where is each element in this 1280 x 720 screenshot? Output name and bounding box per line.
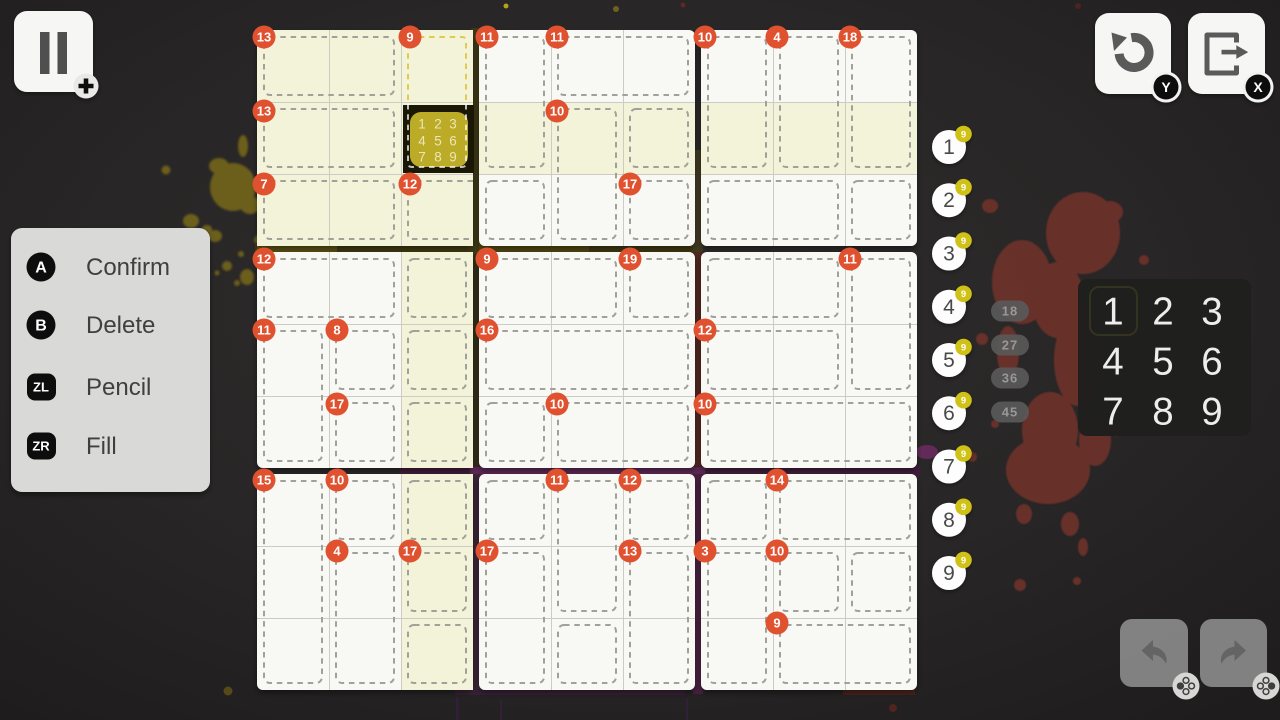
svg-text:Pencil: Pencil	[86, 374, 151, 401]
svg-text:2: 2	[1152, 291, 1173, 334]
svg-text:9: 9	[961, 449, 966, 460]
svg-text:3: 3	[701, 544, 708, 559]
svg-text:10: 10	[698, 30, 712, 45]
svg-text:9: 9	[961, 502, 966, 513]
svg-text:9: 9	[961, 129, 966, 140]
svg-text:9: 9	[961, 236, 966, 247]
svg-text:10: 10	[550, 104, 564, 119]
svg-text:4: 4	[1102, 341, 1123, 384]
svg-text:9: 9	[961, 396, 966, 407]
svg-text:8: 8	[1152, 391, 1173, 434]
svg-text:17: 17	[623, 177, 637, 192]
svg-text:11: 11	[843, 252, 857, 267]
svg-text:Delete: Delete	[86, 312, 155, 339]
svg-text:19: 19	[623, 252, 637, 267]
svg-text:10: 10	[330, 473, 344, 488]
svg-text:7: 7	[943, 456, 955, 479]
svg-text:9: 9	[1201, 391, 1222, 434]
svg-text:4: 4	[418, 133, 426, 148]
svg-text:B: B	[35, 318, 47, 335]
svg-text:9: 9	[961, 289, 966, 300]
svg-text:X: X	[1253, 79, 1263, 95]
svg-text:8: 8	[333, 323, 340, 338]
svg-text:11: 11	[257, 323, 271, 338]
svg-text:ZR: ZR	[32, 439, 50, 454]
svg-text:11: 11	[550, 30, 564, 45]
svg-text:3: 3	[943, 243, 955, 266]
svg-text:6: 6	[1201, 341, 1222, 384]
svg-text:ZL: ZL	[33, 380, 49, 395]
svg-text:5: 5	[434, 133, 442, 148]
svg-text:5: 5	[943, 349, 955, 372]
svg-text:10: 10	[698, 397, 712, 412]
svg-text:8: 8	[943, 509, 955, 532]
svg-text:17: 17	[403, 544, 417, 559]
svg-text:12: 12	[623, 473, 637, 488]
svg-text:45: 45	[1002, 405, 1018, 420]
svg-text:13: 13	[623, 544, 637, 559]
svg-text:13: 13	[257, 30, 271, 45]
svg-text:7: 7	[418, 149, 426, 164]
svg-text:9: 9	[449, 149, 457, 164]
svg-text:6: 6	[449, 133, 457, 148]
svg-text:2: 2	[434, 116, 442, 131]
svg-text:14: 14	[770, 473, 785, 488]
svg-text:9: 9	[943, 562, 955, 585]
svg-text:9: 9	[961, 555, 966, 566]
svg-text:Y: Y	[1161, 79, 1171, 95]
svg-text:9: 9	[961, 342, 966, 353]
svg-text:15: 15	[257, 473, 271, 488]
svg-text:3: 3	[1201, 291, 1222, 334]
svg-text:7: 7	[260, 177, 267, 192]
svg-text:Fill: Fill	[86, 433, 117, 460]
svg-text:A: A	[35, 260, 47, 277]
svg-text:9: 9	[406, 30, 413, 45]
svg-text:5: 5	[1152, 341, 1173, 384]
svg-text:1: 1	[943, 136, 955, 159]
svg-text:17: 17	[330, 397, 344, 412]
svg-text:4: 4	[943, 296, 955, 319]
svg-text:2: 2	[943, 189, 955, 212]
svg-text:3: 3	[449, 116, 457, 131]
svg-text:12: 12	[403, 177, 417, 192]
svg-text:9: 9	[483, 252, 490, 267]
svg-text:12: 12	[698, 323, 712, 338]
svg-text:4: 4	[333, 544, 341, 559]
svg-text:36: 36	[1002, 371, 1018, 386]
svg-text:10: 10	[770, 544, 784, 559]
svg-text:10: 10	[550, 397, 564, 412]
svg-text:1: 1	[418, 116, 426, 131]
svg-text:4: 4	[773, 30, 781, 45]
svg-text:1: 1	[1102, 291, 1123, 334]
svg-text:18: 18	[1002, 304, 1018, 319]
svg-text:6: 6	[943, 402, 955, 425]
svg-text:17: 17	[480, 544, 494, 559]
svg-text:18: 18	[843, 30, 857, 45]
svg-text:27: 27	[1002, 338, 1018, 353]
svg-text:16: 16	[480, 323, 494, 338]
svg-text:9: 9	[961, 183, 966, 194]
svg-text:11: 11	[550, 473, 564, 488]
svg-text:11: 11	[480, 30, 494, 45]
svg-text:7: 7	[1102, 391, 1123, 434]
svg-text:13: 13	[257, 104, 271, 119]
svg-text:Confirm: Confirm	[86, 254, 170, 281]
svg-text:8: 8	[434, 149, 442, 164]
svg-text:12: 12	[257, 252, 271, 267]
svg-text:9: 9	[773, 616, 780, 631]
